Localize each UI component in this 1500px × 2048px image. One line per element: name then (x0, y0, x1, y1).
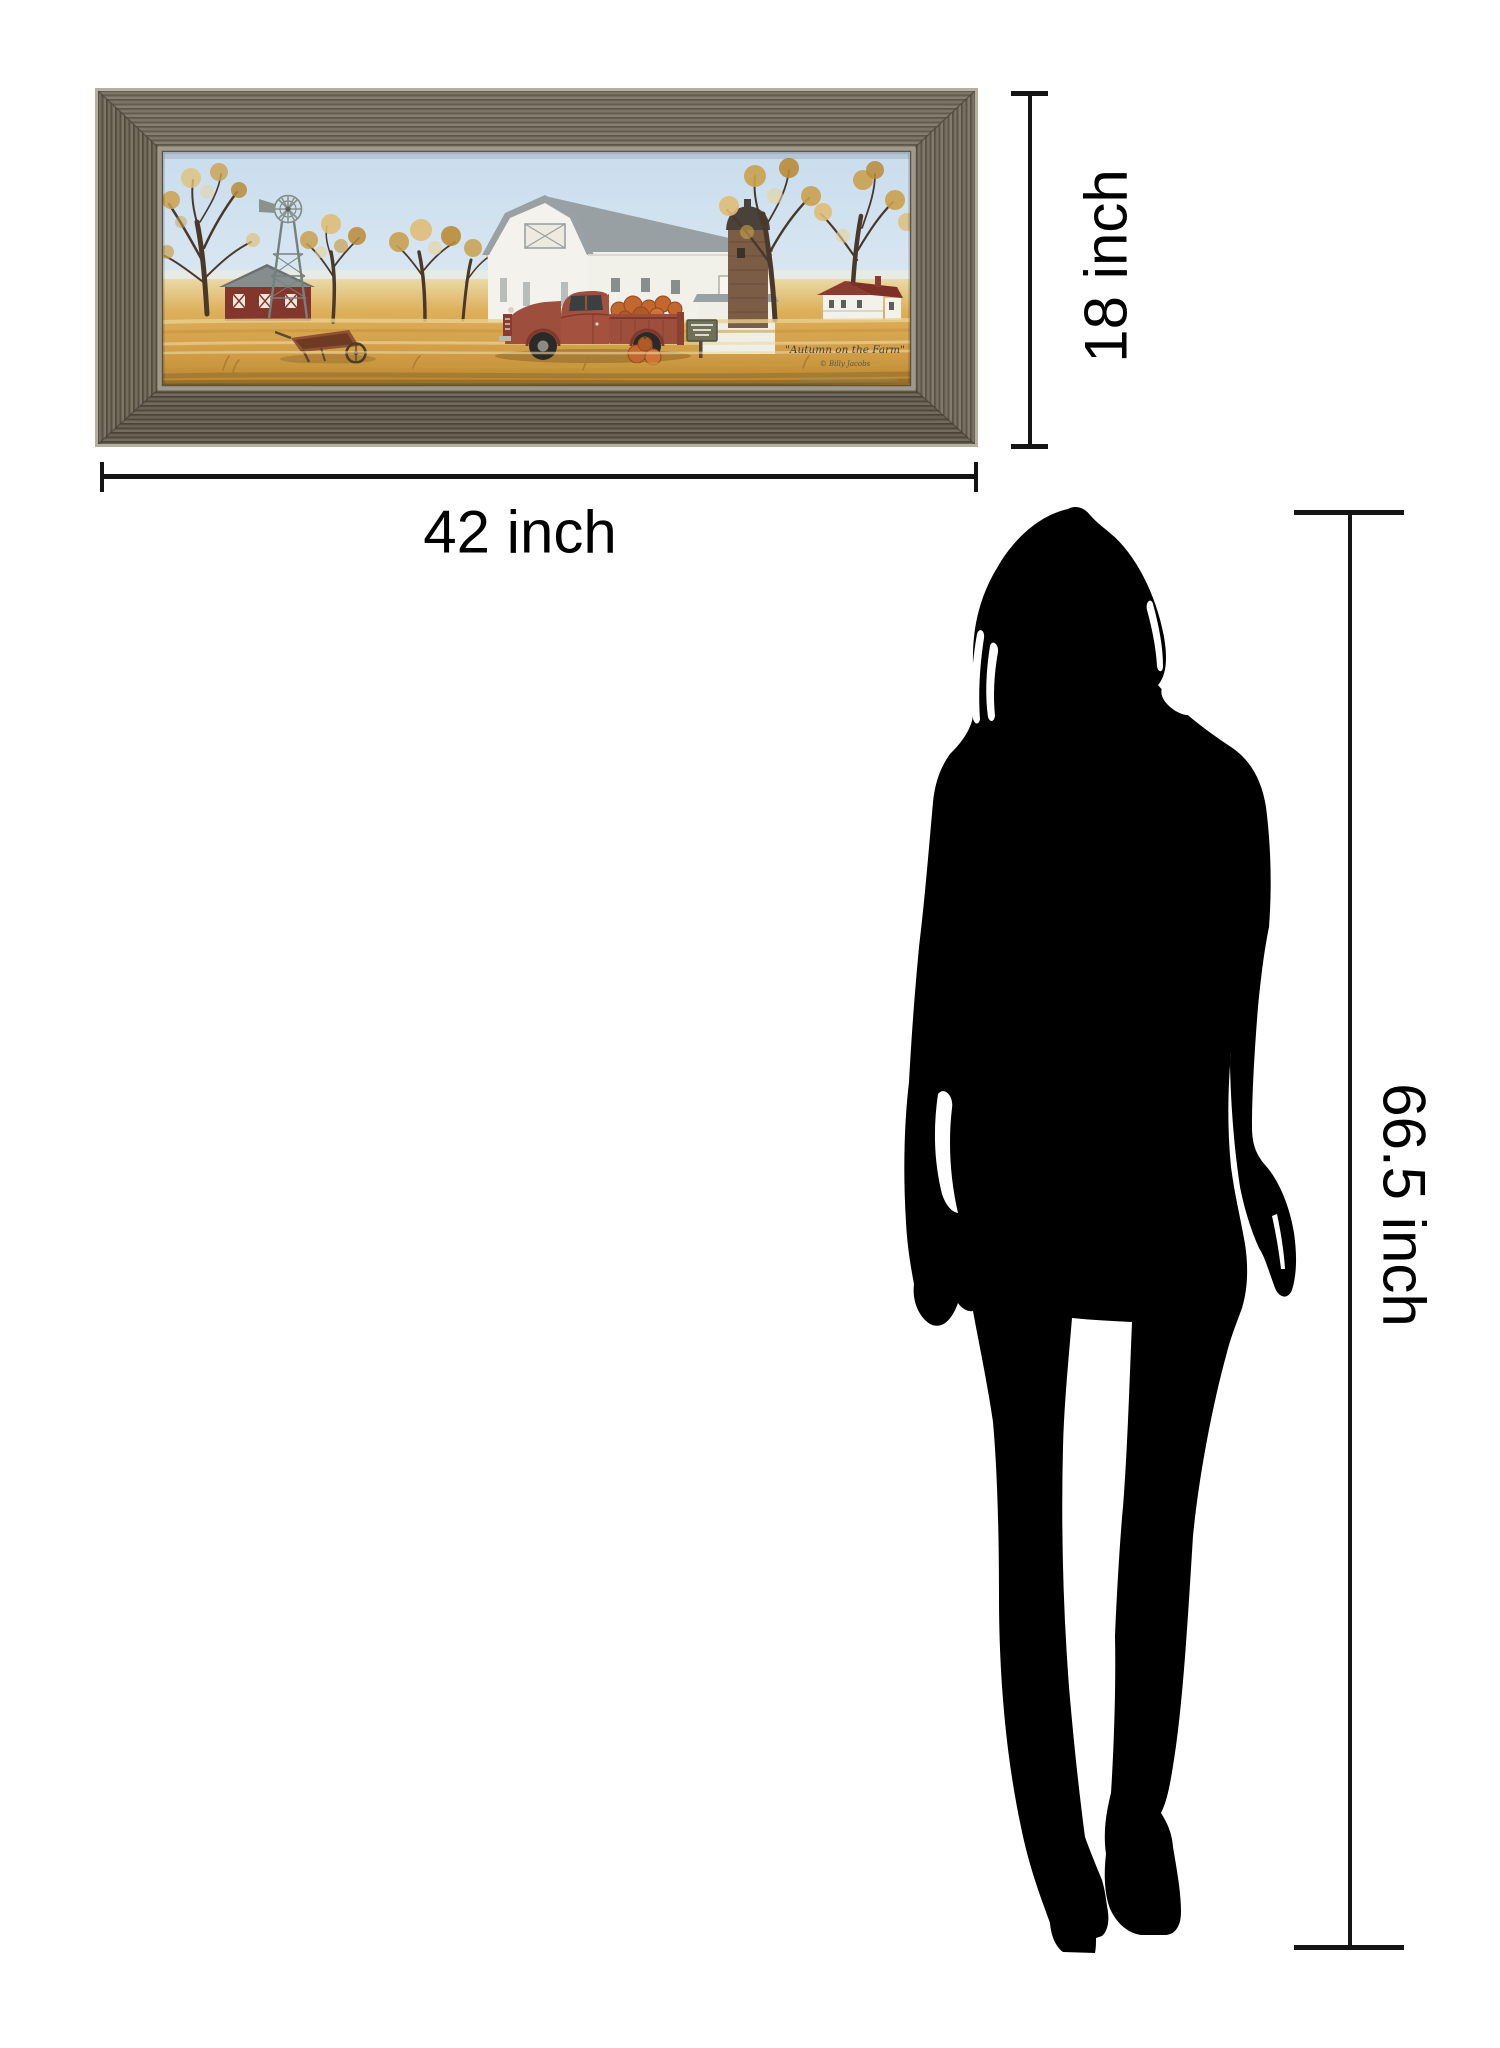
dimension-cap-bottom (1294, 1945, 1404, 1950)
dimension-line-horizontal (102, 474, 976, 479)
art-title-signature: "Autumn on the Farm" (785, 344, 905, 356)
silhouette-body (904, 507, 1296, 1953)
frame-width-label: 42 inch (423, 498, 616, 567)
frame-height-label: 18 inch (1072, 169, 1141, 362)
dimension-cap-bottom (1011, 444, 1048, 449)
dimension-line-vertical (1348, 513, 1352, 1947)
dimension-line-vertical (1028, 93, 1032, 447)
fine-print-line (801, 379, 897, 381)
dimension-tick-right (974, 462, 978, 492)
art-print-autumn-on-the-farm: "Autumn on the Farm" © Billy Jacobs (160, 152, 916, 385)
framed-artwork: "Autumn on the Farm" © Billy Jacobs (95, 88, 978, 447)
person-height-label: 66.5 inch (1370, 1083, 1439, 1327)
artist-credit: © Billy Jacobs (820, 360, 871, 368)
woman-silhouette (900, 506, 1320, 1958)
